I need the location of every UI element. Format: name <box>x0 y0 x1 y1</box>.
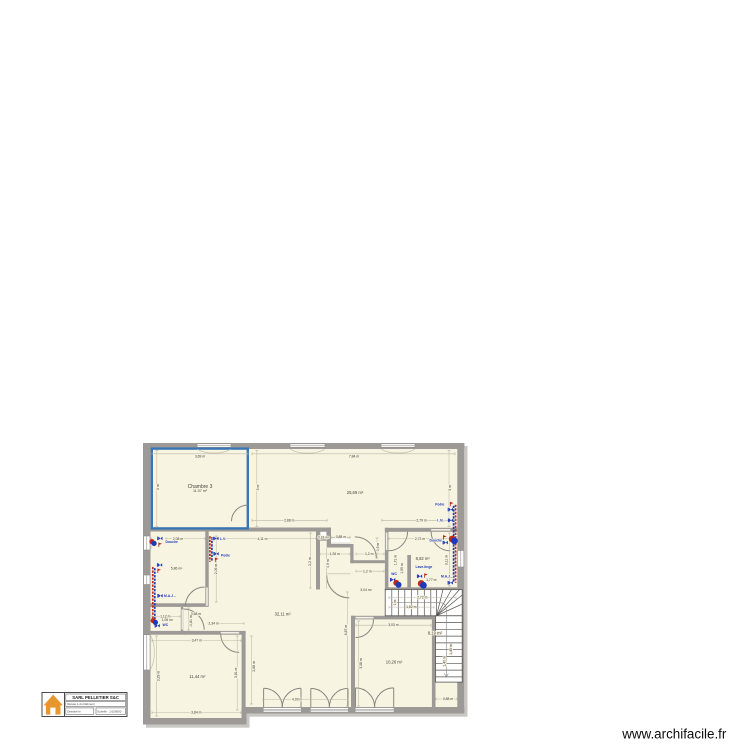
svg-text:3,29 m: 3,29 m <box>157 671 161 682</box>
svg-text:1,08 m²: 1,08 m² <box>162 618 174 622</box>
svg-text:0,88 m: 0,88 m <box>443 697 454 701</box>
svg-text:1,55 m: 1,55 m <box>400 563 404 574</box>
svg-text:0,18 m²: 0,18 m² <box>318 535 329 539</box>
svg-text:1,2 m: 1,2 m <box>365 552 374 556</box>
svg-text:2,34 m: 2,34 m <box>208 622 219 626</box>
svg-text:10,26 m²: 10,26 m² <box>386 660 403 665</box>
svg-text:0,81 m: 0,81 m <box>189 615 193 626</box>
svg-text:25,69 m²: 25,69 m² <box>347 490 364 495</box>
svg-text:4,00 m: 4,00 m <box>292 698 303 702</box>
svg-text:1,82 m: 1,82 m <box>406 605 417 609</box>
svg-text:3,81 m: 3,81 m <box>234 667 238 678</box>
svg-text:WC: WC <box>163 623 169 627</box>
svg-text:3 m: 3 m <box>448 485 452 491</box>
svg-text:11.07 m²: 11.07 m² <box>193 489 208 493</box>
svg-text:1,40 m: 1,40 m <box>443 656 447 667</box>
svg-text:Douche: Douche <box>166 540 179 544</box>
svg-text:2,2 m: 2,2 m <box>308 557 312 566</box>
svg-text:3,04 m²: 3,04 m² <box>360 588 372 592</box>
svg-text:WC: WC <box>391 572 397 576</box>
svg-text:1,26 m: 1,26 m <box>330 552 341 556</box>
svg-text:2,79 m: 2,79 m <box>416 519 427 523</box>
svg-text:3,03 m: 3,03 m <box>388 623 399 627</box>
svg-text:1,2 m: 1,2 m <box>363 569 372 573</box>
svg-text:0,9 m: 0,9 m <box>376 543 380 552</box>
svg-text:l .N.: l .N. <box>437 519 443 523</box>
svg-text:Niveau 1 du bâtiment: Niveau 1 du bâtiment <box>67 702 95 706</box>
svg-text:5,86 m²: 5,86 m² <box>171 567 183 571</box>
svg-text:2,72 m: 2,72 m <box>415 537 426 541</box>
svg-text:2,88 m: 2,88 m <box>284 519 295 523</box>
svg-text:Dessiné le: Dessiné le <box>67 709 81 713</box>
svg-text:0,88 m: 0,88 m <box>336 535 347 539</box>
svg-text:Echelle : 1/100000: Echelle : 1/100000 <box>97 709 121 713</box>
svg-text:3 m: 3 m <box>256 485 260 491</box>
svg-text:Lave-linge: Lave-linge <box>416 565 433 569</box>
svg-text:Poêle: Poêle <box>221 554 230 558</box>
svg-text:M.A.J...: M.A.J... <box>164 594 176 598</box>
svg-text:1,45 m: 1,45 m <box>449 644 453 655</box>
svg-text:2,72 m: 2,72 m <box>417 596 428 600</box>
svg-text:4,11 m: 4,11 m <box>257 537 267 541</box>
svg-text:3,84 m: 3,84 m <box>191 711 202 715</box>
svg-text:3,47 m: 3,47 m <box>192 639 203 643</box>
svg-text:L.V.: L.V. <box>220 537 226 541</box>
svg-text:32,11 m²: 32,11 m² <box>275 612 292 617</box>
svg-text:2,06 m: 2,06 m <box>214 564 218 575</box>
svg-text:Poêle: Poêle <box>435 503 444 507</box>
svg-text:3,38 m: 3,38 m <box>359 658 363 669</box>
svg-text:6,87 m: 6,87 m <box>344 625 348 636</box>
svg-text:11,44 m²: 11,44 m² <box>189 674 206 679</box>
svg-text:8,82 m²: 8,82 m² <box>416 556 431 561</box>
svg-text:3 m: 3 m <box>156 484 160 490</box>
svg-text:2,68 m: 2,68 m <box>252 661 256 672</box>
svg-text:Douche: Douche <box>430 539 443 543</box>
svg-text:0,9 m: 0,9 m <box>326 559 330 568</box>
svg-text:SARL PELLETIER S&C: SARL PELLETIER S&C <box>72 695 119 700</box>
svg-text:3,11 m: 3,11 m <box>445 555 449 565</box>
svg-text:8,19 m²: 8,19 m² <box>428 631 443 636</box>
svg-text:1 m: 1 m <box>393 600 397 606</box>
svg-text:3,69 m: 3,69 m <box>195 455 206 459</box>
svg-text:1,77 m: 1,77 m <box>426 578 437 582</box>
svg-text:7,84 m: 7,84 m <box>349 455 360 459</box>
svg-text:M.A.J...: M.A.J... <box>441 575 453 579</box>
svg-text:1,71 m: 1,71 m <box>394 555 398 566</box>
svg-text:www.archifacile.fr: www.archifacile.fr <box>621 727 727 742</box>
